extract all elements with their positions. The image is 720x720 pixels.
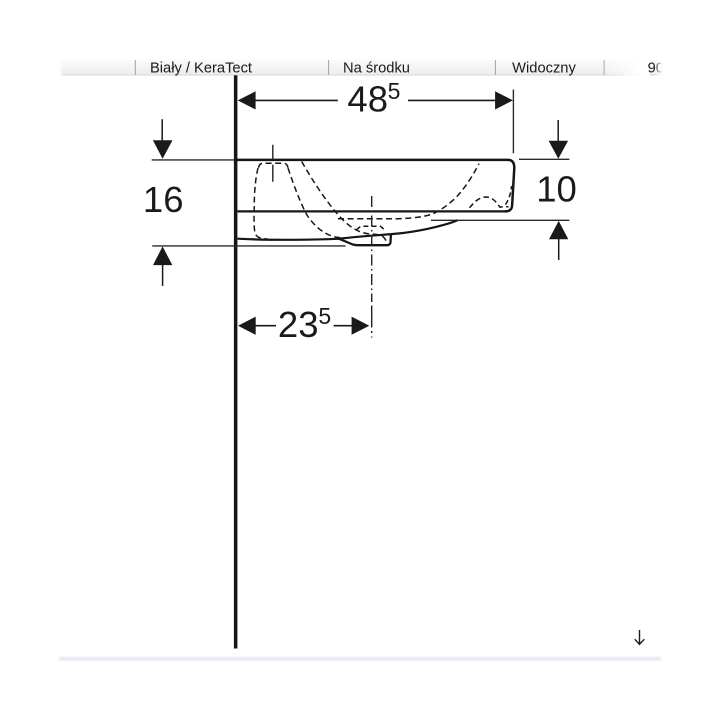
svg-text:16: 16 <box>143 179 184 220</box>
svg-text:10: 10 <box>536 169 577 210</box>
svg-text:5: 5 <box>388 78 401 104</box>
svg-text:Na środku: Na środku <box>343 61 410 77</box>
svg-text:Widoczny: Widoczny <box>512 61 576 77</box>
svg-text:Biały / KeraTect: Biały / KeraTect <box>150 61 252 77</box>
svg-text:23: 23 <box>278 304 319 345</box>
svg-text:5: 5 <box>318 303 331 329</box>
svg-text:48: 48 <box>347 79 388 120</box>
